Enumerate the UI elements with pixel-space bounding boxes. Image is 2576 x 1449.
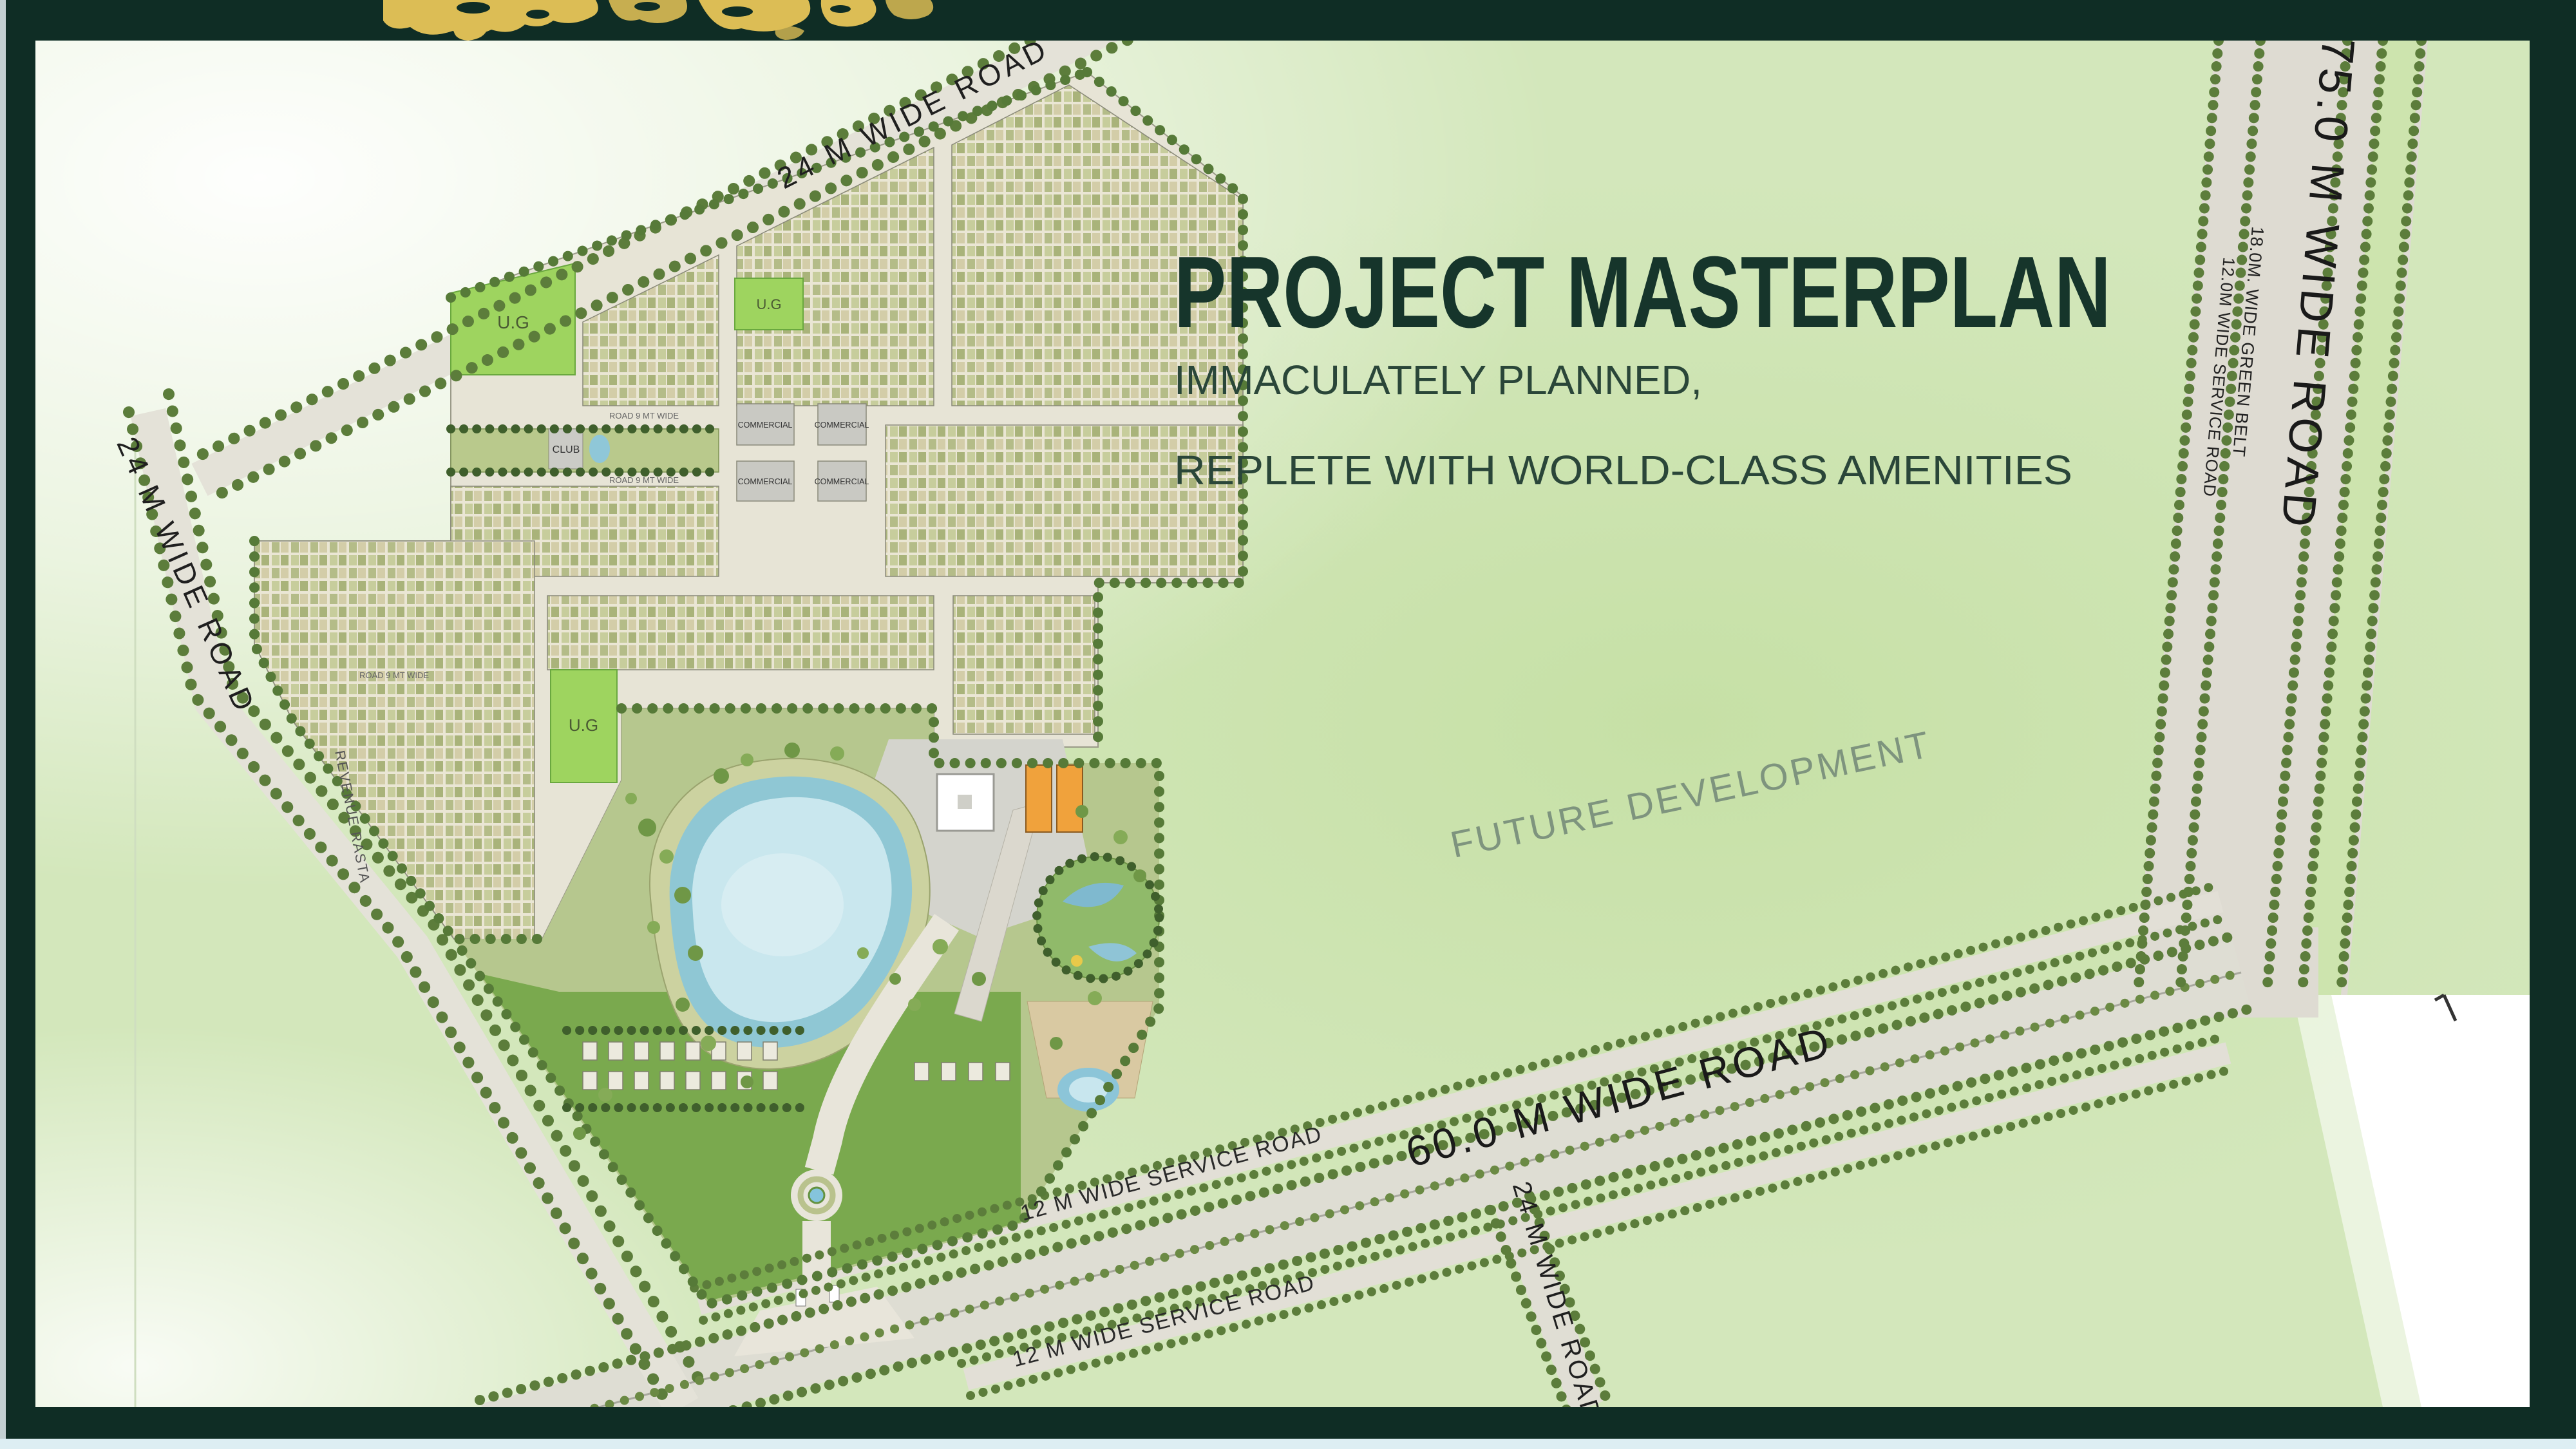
masterplan-slide: PROJECT MASTERPLAN IMMACULATELY PLANNED,…	[0, 0, 2576, 1449]
globe-band	[377, 0, 947, 41]
internal-road-label-1: ROAD 9 MT WIDE	[609, 411, 679, 421]
club-pond	[589, 435, 610, 463]
internal-road-label-3: ROAD 9 MT WIDE	[359, 670, 429, 680]
club-park-strip	[451, 429, 719, 472]
gold-world-map-icon	[377, 0, 947, 41]
ug-label-3: U.G	[756, 296, 781, 312]
masterplan-canvas: PROJECT MASTERPLAN IMMACULATELY PLANNED,…	[35, 41, 2530, 1407]
roundabout-fountain	[809, 1188, 824, 1203]
frame-edge-bottom	[0, 1439, 2576, 1449]
commercial-label-4: COMMERCIAL	[815, 477, 869, 486]
internal-road-label-2: ROAD 9 MT WIDE	[609, 475, 679, 485]
masterplan-map: PROJECT MASTERPLAN IMMACULATELY PLANNED,…	[35, 41, 2530, 1407]
ug-label-2: U.G	[569, 715, 598, 735]
page-subtitle-2: REPLETE WITH WORLD-CLASS AMENITIES	[1174, 447, 2072, 493]
frame-edge-left	[0, 0, 6, 1449]
commercial-label-3: COMMERCIAL	[738, 477, 793, 486]
page-title: PROJECT MASTERPLAN	[1174, 236, 2111, 349]
page-subtitle-1: IMMACULATELY PLANNED,	[1174, 357, 1702, 403]
commercial-label-2: COMMERCIAL	[815, 421, 869, 430]
lake-highlight	[721, 853, 844, 956]
ug-label-1: U.G	[497, 312, 529, 332]
commercial-label-1: COMMERCIAL	[738, 421, 793, 430]
club-label: CLUB	[553, 444, 580, 455]
garden-feature-dot	[1071, 955, 1083, 967]
clubhouse-core	[958, 795, 972, 809]
